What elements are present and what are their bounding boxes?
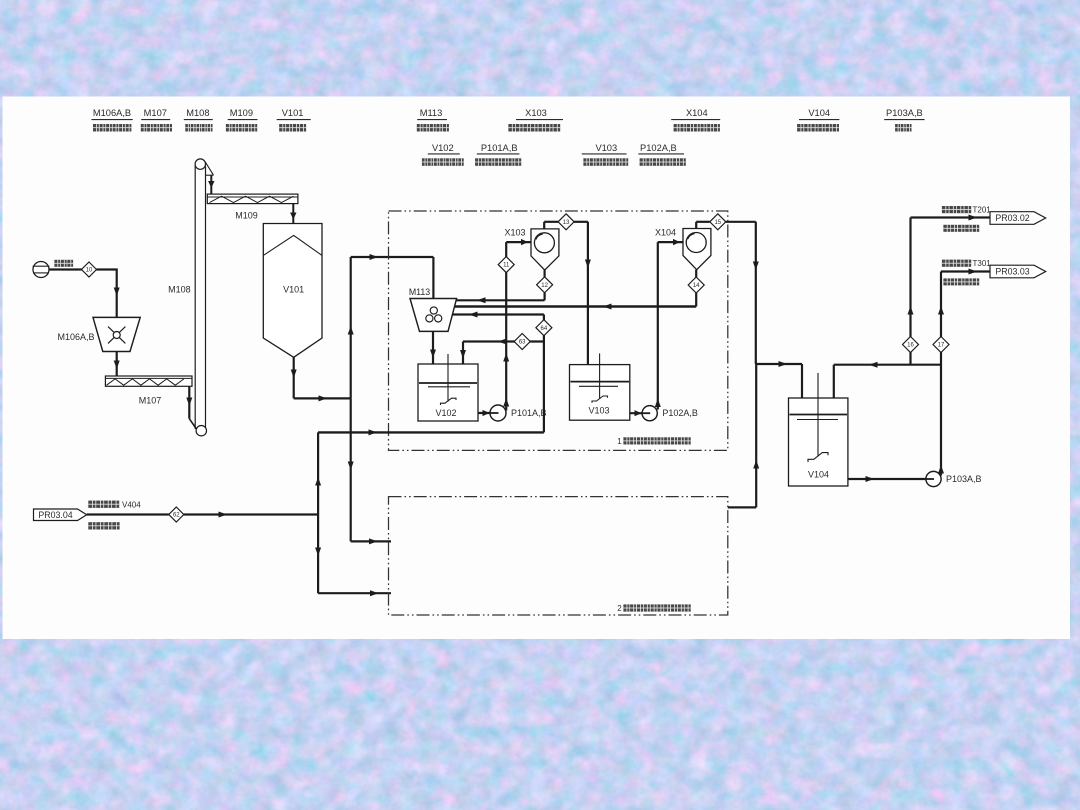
svg-text:P103A,B: P103A,B xyxy=(946,474,982,484)
svg-text:63: 63 xyxy=(519,340,526,346)
svg-text:M107: M107 xyxy=(139,396,162,406)
svg-text:V404: V404 xyxy=(122,500,141,509)
svg-text:62: 62 xyxy=(173,513,180,519)
svg-text:P101A,B: P101A,B xyxy=(511,408,547,418)
svg-text:M109: M109 xyxy=(230,108,253,118)
svg-text:X103: X103 xyxy=(504,228,525,238)
svg-text:14: 14 xyxy=(693,283,700,289)
svg-text:M107: M107 xyxy=(144,108,167,118)
svg-text:M106A,B: M106A,B xyxy=(57,332,94,342)
svg-text:M109: M109 xyxy=(235,210,258,220)
svg-text:X103: X103 xyxy=(525,108,547,118)
svg-text:V102: V102 xyxy=(432,143,454,153)
svg-text:V101: V101 xyxy=(283,285,304,295)
svg-text:T201: T201 xyxy=(973,206,992,215)
svg-text:M113: M113 xyxy=(420,108,443,118)
svg-text:M106A,B: M106A,B xyxy=(93,108,131,118)
svg-text:P102A,B: P102A,B xyxy=(640,143,677,153)
svg-text:V104: V104 xyxy=(808,108,830,118)
svg-text:P103A,B: P103A,B xyxy=(886,108,923,118)
svg-text:12: 12 xyxy=(541,283,548,289)
svg-text:17: 17 xyxy=(938,343,945,349)
svg-text:V101: V101 xyxy=(282,108,304,118)
svg-text:13: 13 xyxy=(563,220,570,226)
svg-text:M113: M113 xyxy=(409,287,430,297)
svg-text:P102A,B: P102A,B xyxy=(662,408,698,418)
svg-text:V103: V103 xyxy=(595,143,617,153)
svg-text:T301: T301 xyxy=(973,259,992,268)
svg-text:V102: V102 xyxy=(435,408,456,418)
svg-text:PR03.04: PR03.04 xyxy=(38,510,72,520)
svg-text:X104: X104 xyxy=(655,228,676,238)
svg-text:P101A,B: P101A,B xyxy=(481,143,518,153)
svg-text:X104: X104 xyxy=(686,108,708,118)
svg-text:15: 15 xyxy=(714,220,721,226)
svg-text:PR03.02: PR03.02 xyxy=(995,213,1029,223)
svg-text:2: 2 xyxy=(617,604,622,613)
svg-text:16: 16 xyxy=(907,343,914,349)
svg-text:M108: M108 xyxy=(186,108,209,118)
svg-text:V104: V104 xyxy=(808,470,829,480)
svg-text:11: 11 xyxy=(503,263,510,269)
svg-text:64: 64 xyxy=(541,326,548,332)
svg-text:10: 10 xyxy=(86,268,93,274)
svg-text:M108: M108 xyxy=(168,285,191,295)
svg-text:V103: V103 xyxy=(588,406,609,416)
svg-text:1: 1 xyxy=(617,437,622,446)
svg-text:PR03.03: PR03.03 xyxy=(995,267,1029,277)
